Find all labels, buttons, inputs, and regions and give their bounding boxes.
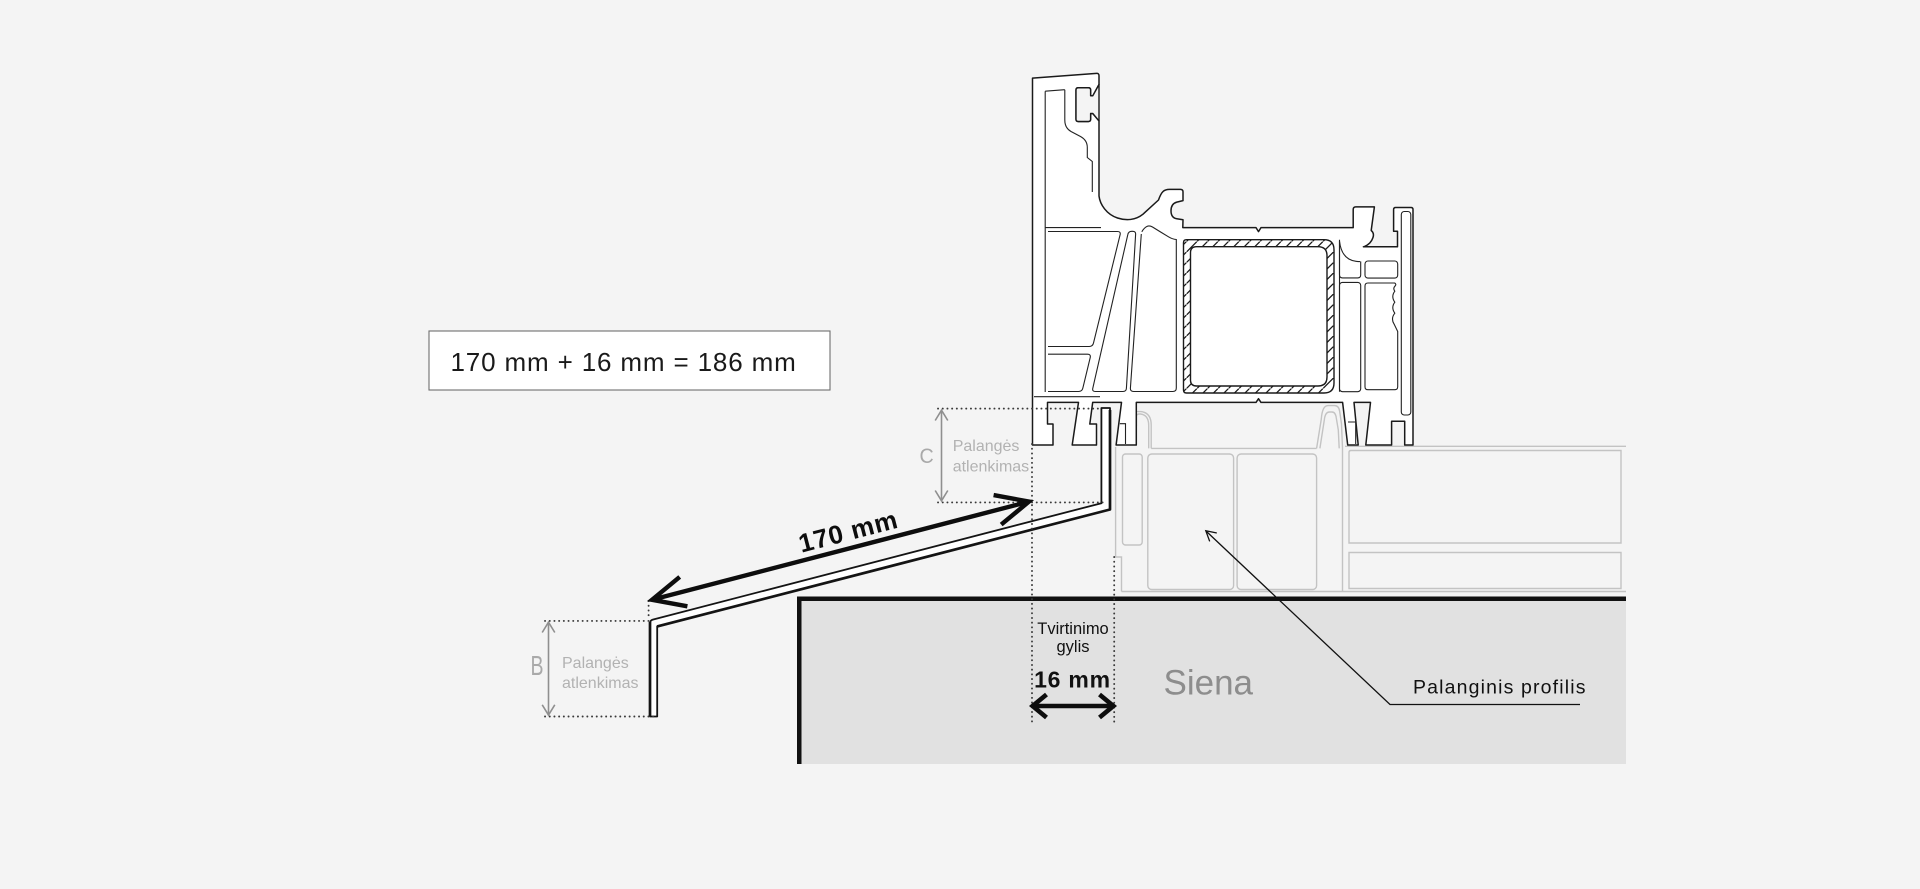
svg-text:atlenkimas: atlenkimas [562,675,638,692]
svg-text:Palangės: Palangės [953,438,1020,455]
svg-text:Tvirtinimo: Tvirtinimo [1037,620,1109,638]
svg-text:B: B [531,650,544,681]
svg-text:Palangės: Palangės [562,655,629,672]
svg-text:C: C [920,445,934,468]
svg-text:atlenkimas: atlenkimas [953,459,1029,476]
svg-text:16 mm: 16 mm [1034,667,1111,693]
svg-text:Palanginis profilis: Palanginis profilis [1413,676,1587,698]
svg-text:Siena: Siena [1164,663,1254,702]
svg-text:gylis: gylis [1056,638,1089,656]
svg-text:170 mm + 16 mm = 186 mm: 170 mm + 16 mm = 186 mm [451,347,797,377]
